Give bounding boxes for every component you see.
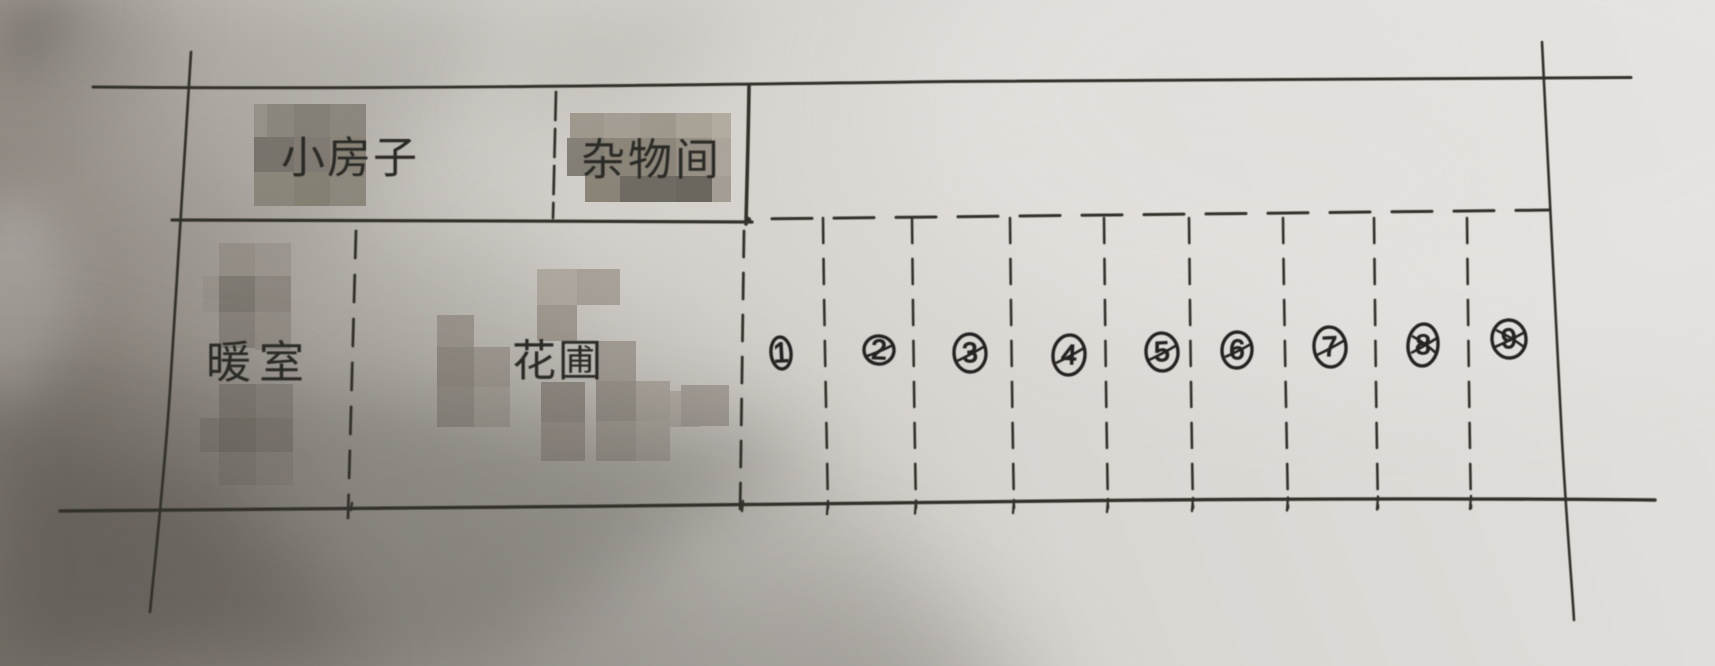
svg-text:1: 1 <box>772 337 789 369</box>
